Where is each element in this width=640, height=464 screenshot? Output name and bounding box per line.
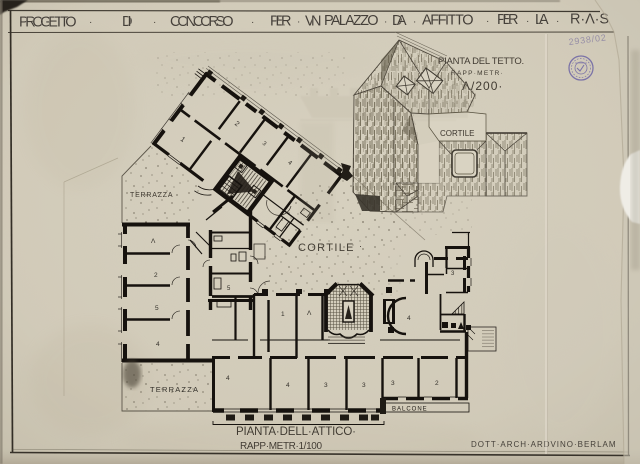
svg-text:PALAZZO: PALAZZO — [324, 13, 380, 29]
svg-text:DOTT·ARCH·ARDVINO·BERLAM: DOTT·ARCH·ARDVINO·BERLAM — [471, 440, 616, 449]
svg-text:CORTILE: CORTILE — [298, 242, 355, 254]
svg-text:4: 4 — [156, 341, 160, 348]
svg-text:5: 5 — [155, 305, 159, 312]
svg-text:TERRAZZA: TERRAZZA — [150, 385, 199, 394]
svg-text:CONCORSO: CONCORSO — [170, 14, 235, 30]
svg-text:2: 2 — [154, 272, 158, 279]
svg-text:PER: PER — [270, 14, 293, 30]
svg-text:·: · — [486, 16, 489, 27]
svg-text:·: · — [556, 16, 559, 27]
svg-text:·: · — [526, 16, 529, 27]
svg-text:1: 1 — [281, 311, 285, 318]
svg-text:DA: DA — [392, 13, 408, 29]
svg-text:Λ: Λ — [307, 310, 312, 317]
svg-text:TERRAZZA: TERRAZZA — [130, 192, 173, 199]
svg-text:·: · — [384, 17, 387, 28]
svg-text:·: · — [251, 17, 254, 28]
svg-text:RAPP·METR·1/100: RAPP·METR·1/100 — [240, 441, 324, 452]
svg-text:RAPP·METR·: RAPP·METR· — [451, 70, 504, 77]
svg-text:DI: DI — [122, 14, 134, 30]
svg-text:Λ/200·: Λ/200· — [462, 79, 503, 93]
svg-text:PROGETTO: PROGETTO — [19, 15, 78, 31]
svg-text:PIANTA·DELL·ATTICO·: PIANTA·DELL·ATTICO· — [236, 426, 358, 438]
svg-text:3: 3 — [324, 382, 328, 389]
svg-text:Λ: Λ — [151, 238, 156, 245]
svg-text:3: 3 — [391, 380, 395, 387]
svg-text:·: · — [359, 241, 362, 251]
svg-text:PER: PER — [497, 12, 520, 28]
svg-text:4: 4 — [407, 315, 411, 322]
svg-text:·: · — [297, 17, 300, 28]
svg-text:·: · — [153, 17, 156, 28]
svg-text:AFFITTO: AFFITTO — [422, 13, 475, 29]
svg-text:VN: VN — [305, 14, 323, 30]
svg-text:CORTILE: CORTILE — [440, 129, 476, 138]
svg-text:3: 3 — [362, 382, 366, 389]
svg-text:PIANTA DEL TETTO.: PIANTA DEL TETTO. — [438, 56, 526, 67]
svg-text:4: 4 — [226, 375, 230, 382]
svg-text:·: · — [413, 17, 416, 28]
svg-text:4: 4 — [286, 382, 290, 389]
svg-text:2: 2 — [435, 380, 439, 387]
svg-text:BALCONE: BALCONE — [392, 407, 428, 413]
svg-text:·: · — [89, 17, 92, 28]
svg-text:LA: LA — [535, 12, 550, 28]
